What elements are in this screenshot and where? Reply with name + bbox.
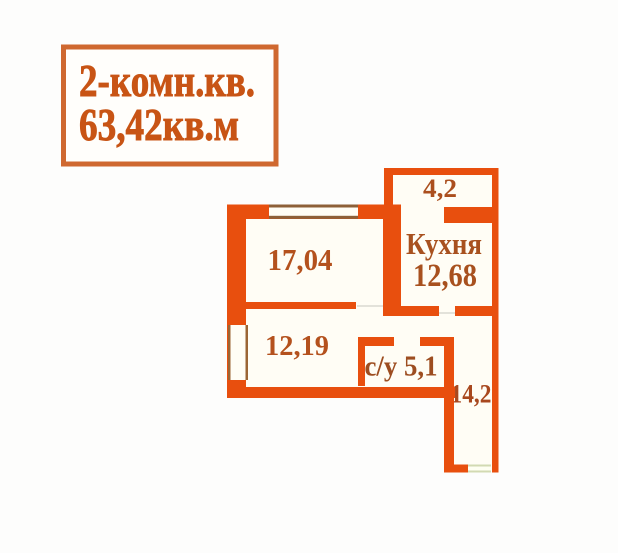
svg-text:12,19: 12,19 <box>265 330 329 362</box>
svg-text:Кухня: Кухня <box>406 226 482 261</box>
svg-text:с/у 5,1: с/у 5,1 <box>365 351 438 383</box>
svg-text:63,42кв.м: 63,42кв.м <box>79 99 239 150</box>
svg-text:17,04: 17,04 <box>268 242 333 277</box>
svg-text:14,2: 14,2 <box>451 380 492 409</box>
svg-text:12,68: 12,68 <box>413 258 477 294</box>
svg-text:4,2: 4,2 <box>423 174 457 203</box>
